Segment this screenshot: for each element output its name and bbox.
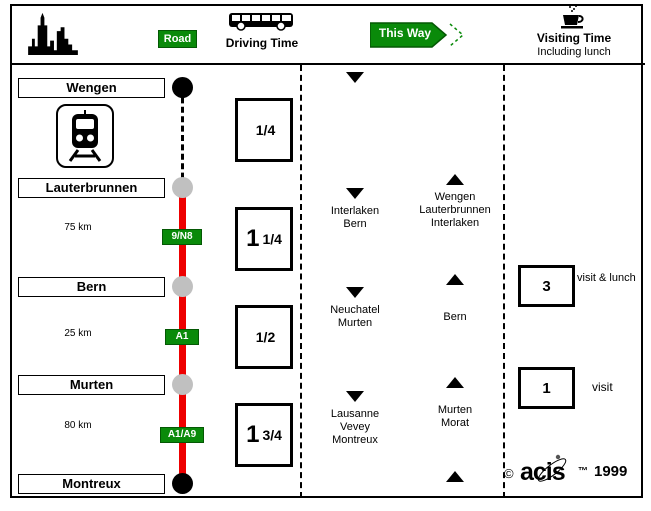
station-marker-murten [172, 374, 193, 395]
station-marker-lauterbrunnen [172, 177, 193, 198]
visiting-time-note: visit [592, 380, 613, 394]
acis-logo: © acis ™ 1999 [502, 458, 644, 494]
arrow-down-icon [346, 391, 364, 402]
rail-segment-line [181, 88, 184, 188]
arrow-up-icon [446, 471, 464, 482]
up-route-label: Bern [395, 311, 515, 324]
driving-time-fraction: 1/4 [256, 122, 275, 138]
distance-label: 80 km [38, 420, 118, 431]
station-marker-montreux [172, 473, 193, 494]
arrow-down-icon [346, 188, 364, 199]
station-box-bern: Bern [18, 277, 165, 297]
driving-time-box: 1 1/4 [235, 207, 293, 271]
arrow-up-icon [446, 274, 464, 285]
driving-time-fraction: 1/2 [256, 329, 275, 345]
station-marker-wengen [172, 77, 193, 98]
train-icon [56, 104, 114, 168]
driving-time-whole: 1 [246, 225, 259, 253]
itinerary-diagram: Road Driving Time This Way Visi [0, 0, 651, 511]
visiting-time-header: Visiting Time [504, 31, 644, 45]
station-marker-bern [172, 276, 193, 297]
visiting-time-note: visit & lunch [577, 272, 636, 284]
orbit-icon [530, 446, 574, 490]
bus-icon [228, 11, 296, 36]
up-route-label: Wengen Lauterbrunnen Interlaken [395, 191, 515, 230]
road-number-badge: A1/A9 [160, 427, 204, 443]
arrow-down-icon [346, 72, 364, 83]
trademark-symbol: ™ [578, 466, 588, 477]
station-box-murten: Murten [18, 375, 165, 395]
column-divider-right [503, 65, 505, 498]
distance-label: 75 km [38, 222, 118, 233]
road-number-badge: 9/N8 [162, 229, 202, 245]
arrow-up-icon [446, 377, 464, 388]
copyright-symbol: © [504, 466, 514, 481]
visiting-time-box: 3 [518, 265, 575, 307]
driving-time-fraction: 1/4 [262, 231, 281, 247]
copyright-year: 1999 [594, 463, 627, 480]
visiting-time-subtitle: Including lunch [504, 46, 644, 58]
station-box-lauterbrunnen: Lauterbrunnen [18, 178, 165, 198]
driving-time-whole: 1 [246, 421, 259, 449]
driving-time-box: 1 3/4 [235, 403, 293, 467]
driving-time-box: 1/4 [235, 98, 293, 162]
station-box-montreux: Montreux [18, 474, 165, 494]
road-header-badge: Road [158, 30, 197, 48]
road-number-badge: A1 [165, 329, 199, 345]
driving-time-fraction: 3/4 [262, 427, 281, 443]
station-box-wengen: Wengen [18, 78, 165, 98]
this-way-label: This Way [374, 26, 436, 40]
driving-time-header: Driving Time [202, 36, 322, 50]
city-skyline-icon [28, 11, 78, 60]
visiting-time-box: 1 [518, 367, 575, 409]
driving-time-box: 1/2 [235, 305, 293, 369]
header-separator [10, 63, 645, 65]
up-route-label: Murten Morat [395, 404, 515, 430]
arrow-up-icon [446, 174, 464, 185]
arrow-down-icon [346, 287, 364, 298]
distance-label: 25 km [38, 328, 118, 339]
